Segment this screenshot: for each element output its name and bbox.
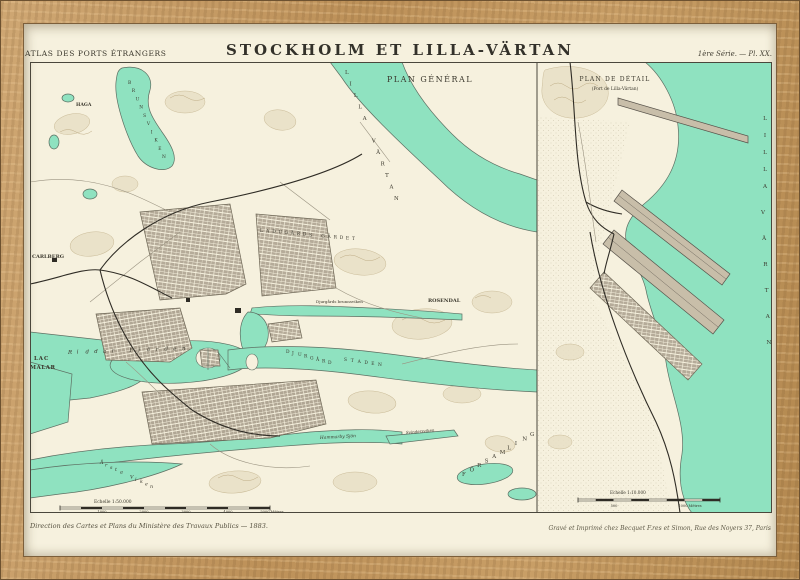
detail-scale-label: Echelle 1:10.000 [610,490,646,495]
footer-imprint-right: Gravé et Imprimé chez Becquet F.res et S… [549,525,771,532]
plate-number: 1ère Série. — Pl. XX. [698,50,772,58]
tick: 500 [611,504,619,508]
framed-map-photo: ATLAS DES PORTS ÉTRANGERS STOCKHOLM ET L… [0,0,800,580]
label-malar: MALAR [30,365,56,371]
map-title: STOCKHOLM ET LILLA-VÄRTAN [24,41,776,59]
general-plan-map: PLAN GÉNÉRAL HAGA BRUNSVIKEN CARLBERG LA… [30,62,537,513]
label-carlberg: CARLBERG [32,254,64,260]
detail-plan-title: PLAN DE DÉTAIL [580,75,651,83]
general-scale-label: Echelle 1:50.000 [94,500,132,505]
label-rosendal: ROSENDAL [428,298,461,304]
map-sheet: ATLAS DES PORTS ÉTRANGERS STOCKHOLM ET L… [24,24,776,556]
general-plan-title: PLAN GÉNÉRAL [387,75,473,84]
label-lac: LAC [34,356,49,362]
tick: 1000 Mètres [678,504,701,508]
label-haga: HAGA [76,102,92,108]
map-plate-artwork: PLAN GÉNÉRAL HAGA BRUNSVIKEN CARLBERG LA… [30,62,772,513]
detail-plan-map: PLAN DE DÉTAIL (Port de Lilla-Värtan) LI… [537,62,772,513]
detail-plan-subtitle: (Port de Lilla-Värtan) [592,87,639,92]
label-djurgards-brunnsviken: Djurgårds brunnsviken [316,299,363,304]
scale-bar-general: Echelle 1:50.000 1000 2000 3000 4000 500… [60,500,284,513]
footer-imprint-left: Direction des Cartes et Plans du Ministè… [30,522,268,530]
